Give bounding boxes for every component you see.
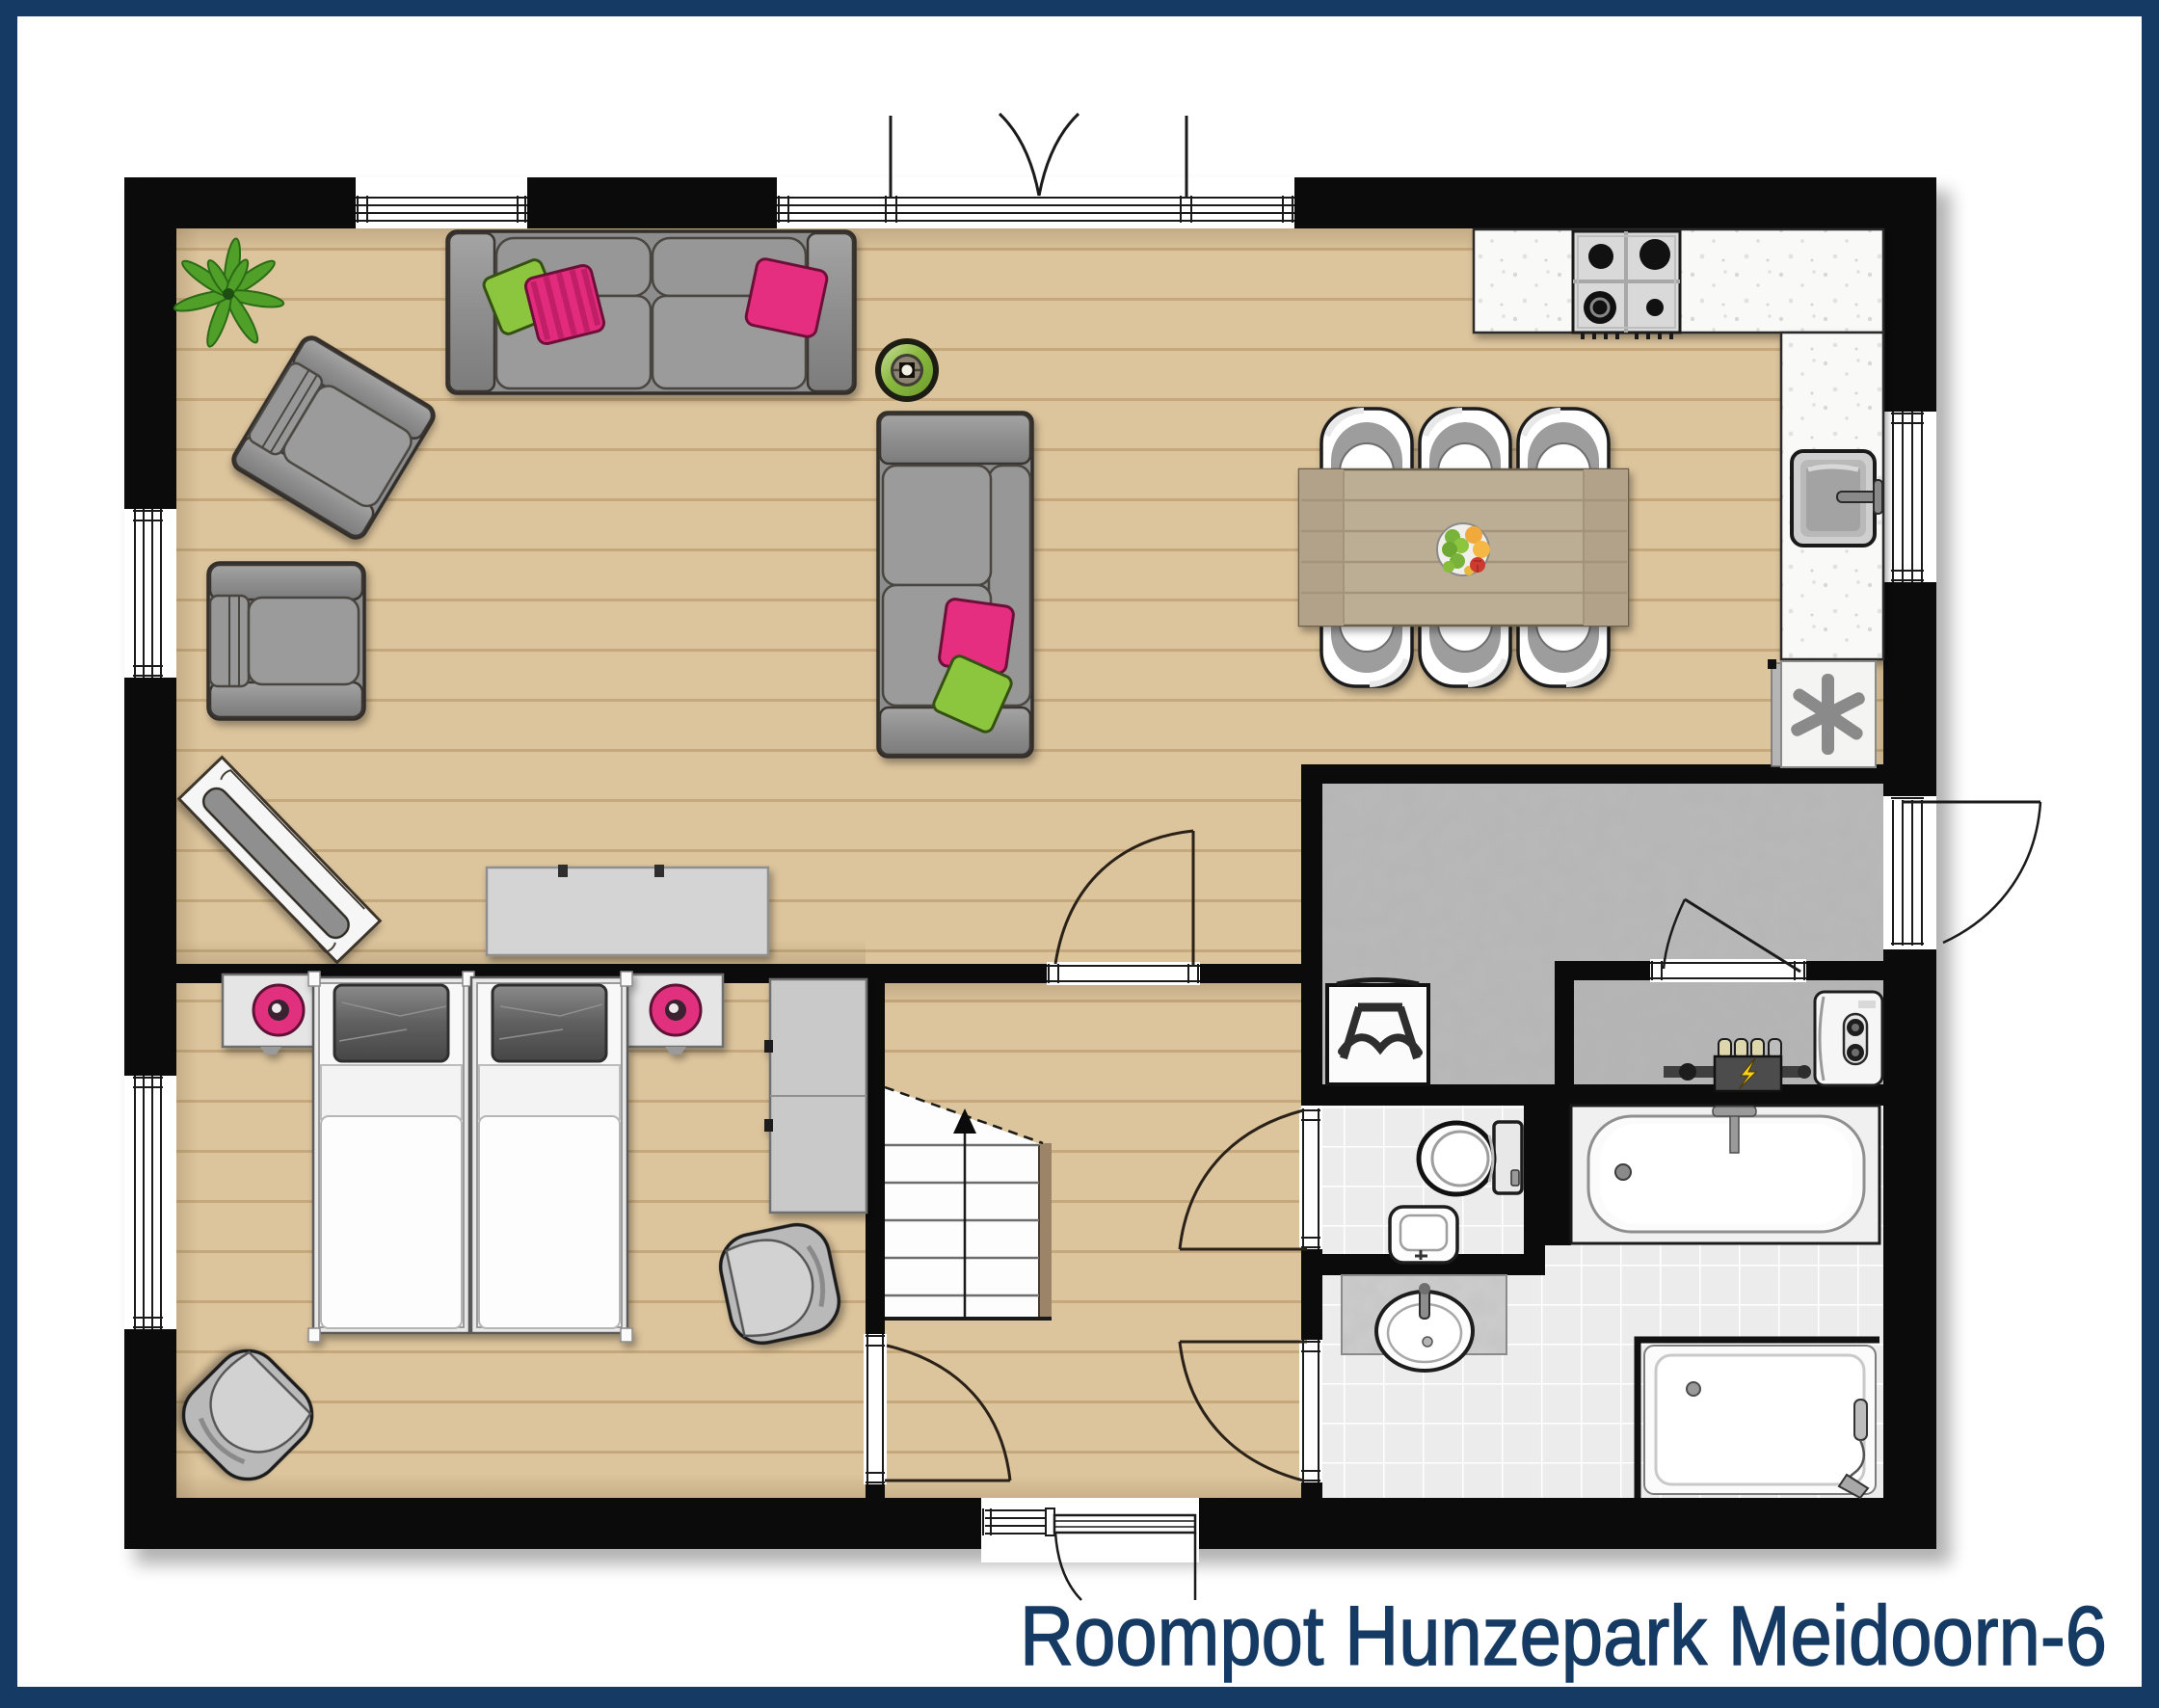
svg-text:Roompot Hunzepark Meidoorn-6: Roompot Hunzepark Meidoorn-6 <box>1020 1589 2107 1683</box>
